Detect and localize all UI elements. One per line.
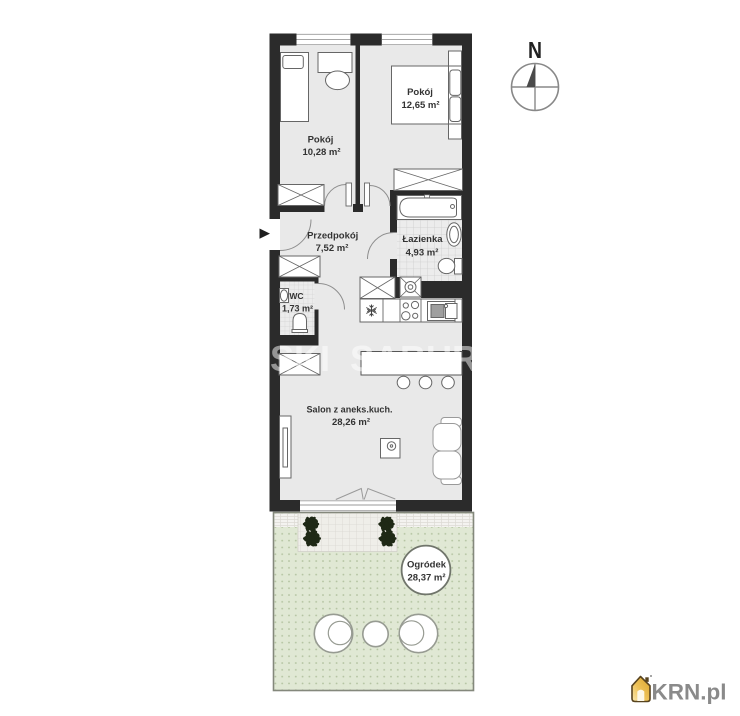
svg-text:WC: WC [289, 291, 303, 301]
svg-text:Ogródek: Ogródek [407, 559, 447, 570]
svg-text:1,73 m²: 1,73 m² [282, 304, 313, 314]
svg-text:Pokój: Pokój [407, 87, 433, 98]
svg-text:Salon z aneks.kuch.: Salon z aneks.kuch. [307, 405, 393, 416]
svg-text:4,93 m²: 4,93 m² [406, 248, 439, 259]
svg-text:Pokój: Pokój [308, 135, 334, 146]
svg-text:7,52 m²: 7,52 m² [316, 243, 349, 254]
svg-text:10,28 m²: 10,28 m² [302, 147, 340, 158]
svg-text:N: N [528, 37, 542, 63]
svg-text:12,65 m²: 12,65 m² [401, 100, 439, 111]
svg-text:SKI SABUR: SKI SABUR [270, 338, 478, 379]
svg-text:28,26 m²: 28,26 m² [332, 417, 370, 428]
svg-text:Przedpokój: Przedpokój [307, 231, 358, 242]
svg-text:28,37 m²: 28,37 m² [407, 573, 445, 584]
svg-text:KRN.pl: KRN.pl [652, 680, 727, 705]
svg-text:Łazienka: Łazienka [402, 234, 443, 245]
